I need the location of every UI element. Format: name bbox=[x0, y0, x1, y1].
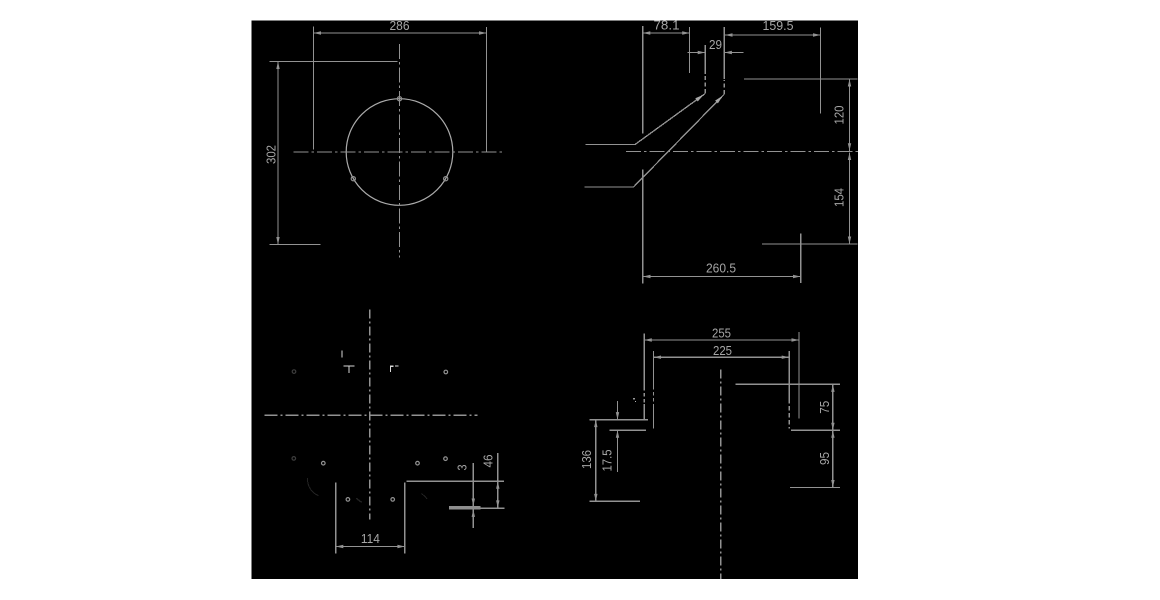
svg-text:114: 114 bbox=[361, 531, 380, 546]
svg-text:136: 136 bbox=[579, 450, 594, 469]
svg-text:46: 46 bbox=[480, 455, 495, 468]
svg-text:159.5: 159.5 bbox=[763, 18, 794, 33]
svg-text:17.5: 17.5 bbox=[599, 450, 614, 472]
svg-text:225: 225 bbox=[713, 343, 732, 358]
svg-text:302: 302 bbox=[263, 145, 278, 164]
svg-text:260.5: 260.5 bbox=[706, 261, 736, 276]
svg-text:286: 286 bbox=[390, 18, 410, 33]
svg-text:75: 75 bbox=[817, 401, 832, 414]
svg-text:29: 29 bbox=[709, 37, 722, 52]
svg-text:3: 3 bbox=[454, 465, 469, 471]
svg-text:154: 154 bbox=[831, 188, 846, 207]
svg-text:78.1: 78.1 bbox=[654, 18, 680, 33]
svg-text:120: 120 bbox=[831, 106, 846, 125]
svg-text:255: 255 bbox=[712, 325, 731, 340]
svg-text:95: 95 bbox=[817, 452, 832, 465]
